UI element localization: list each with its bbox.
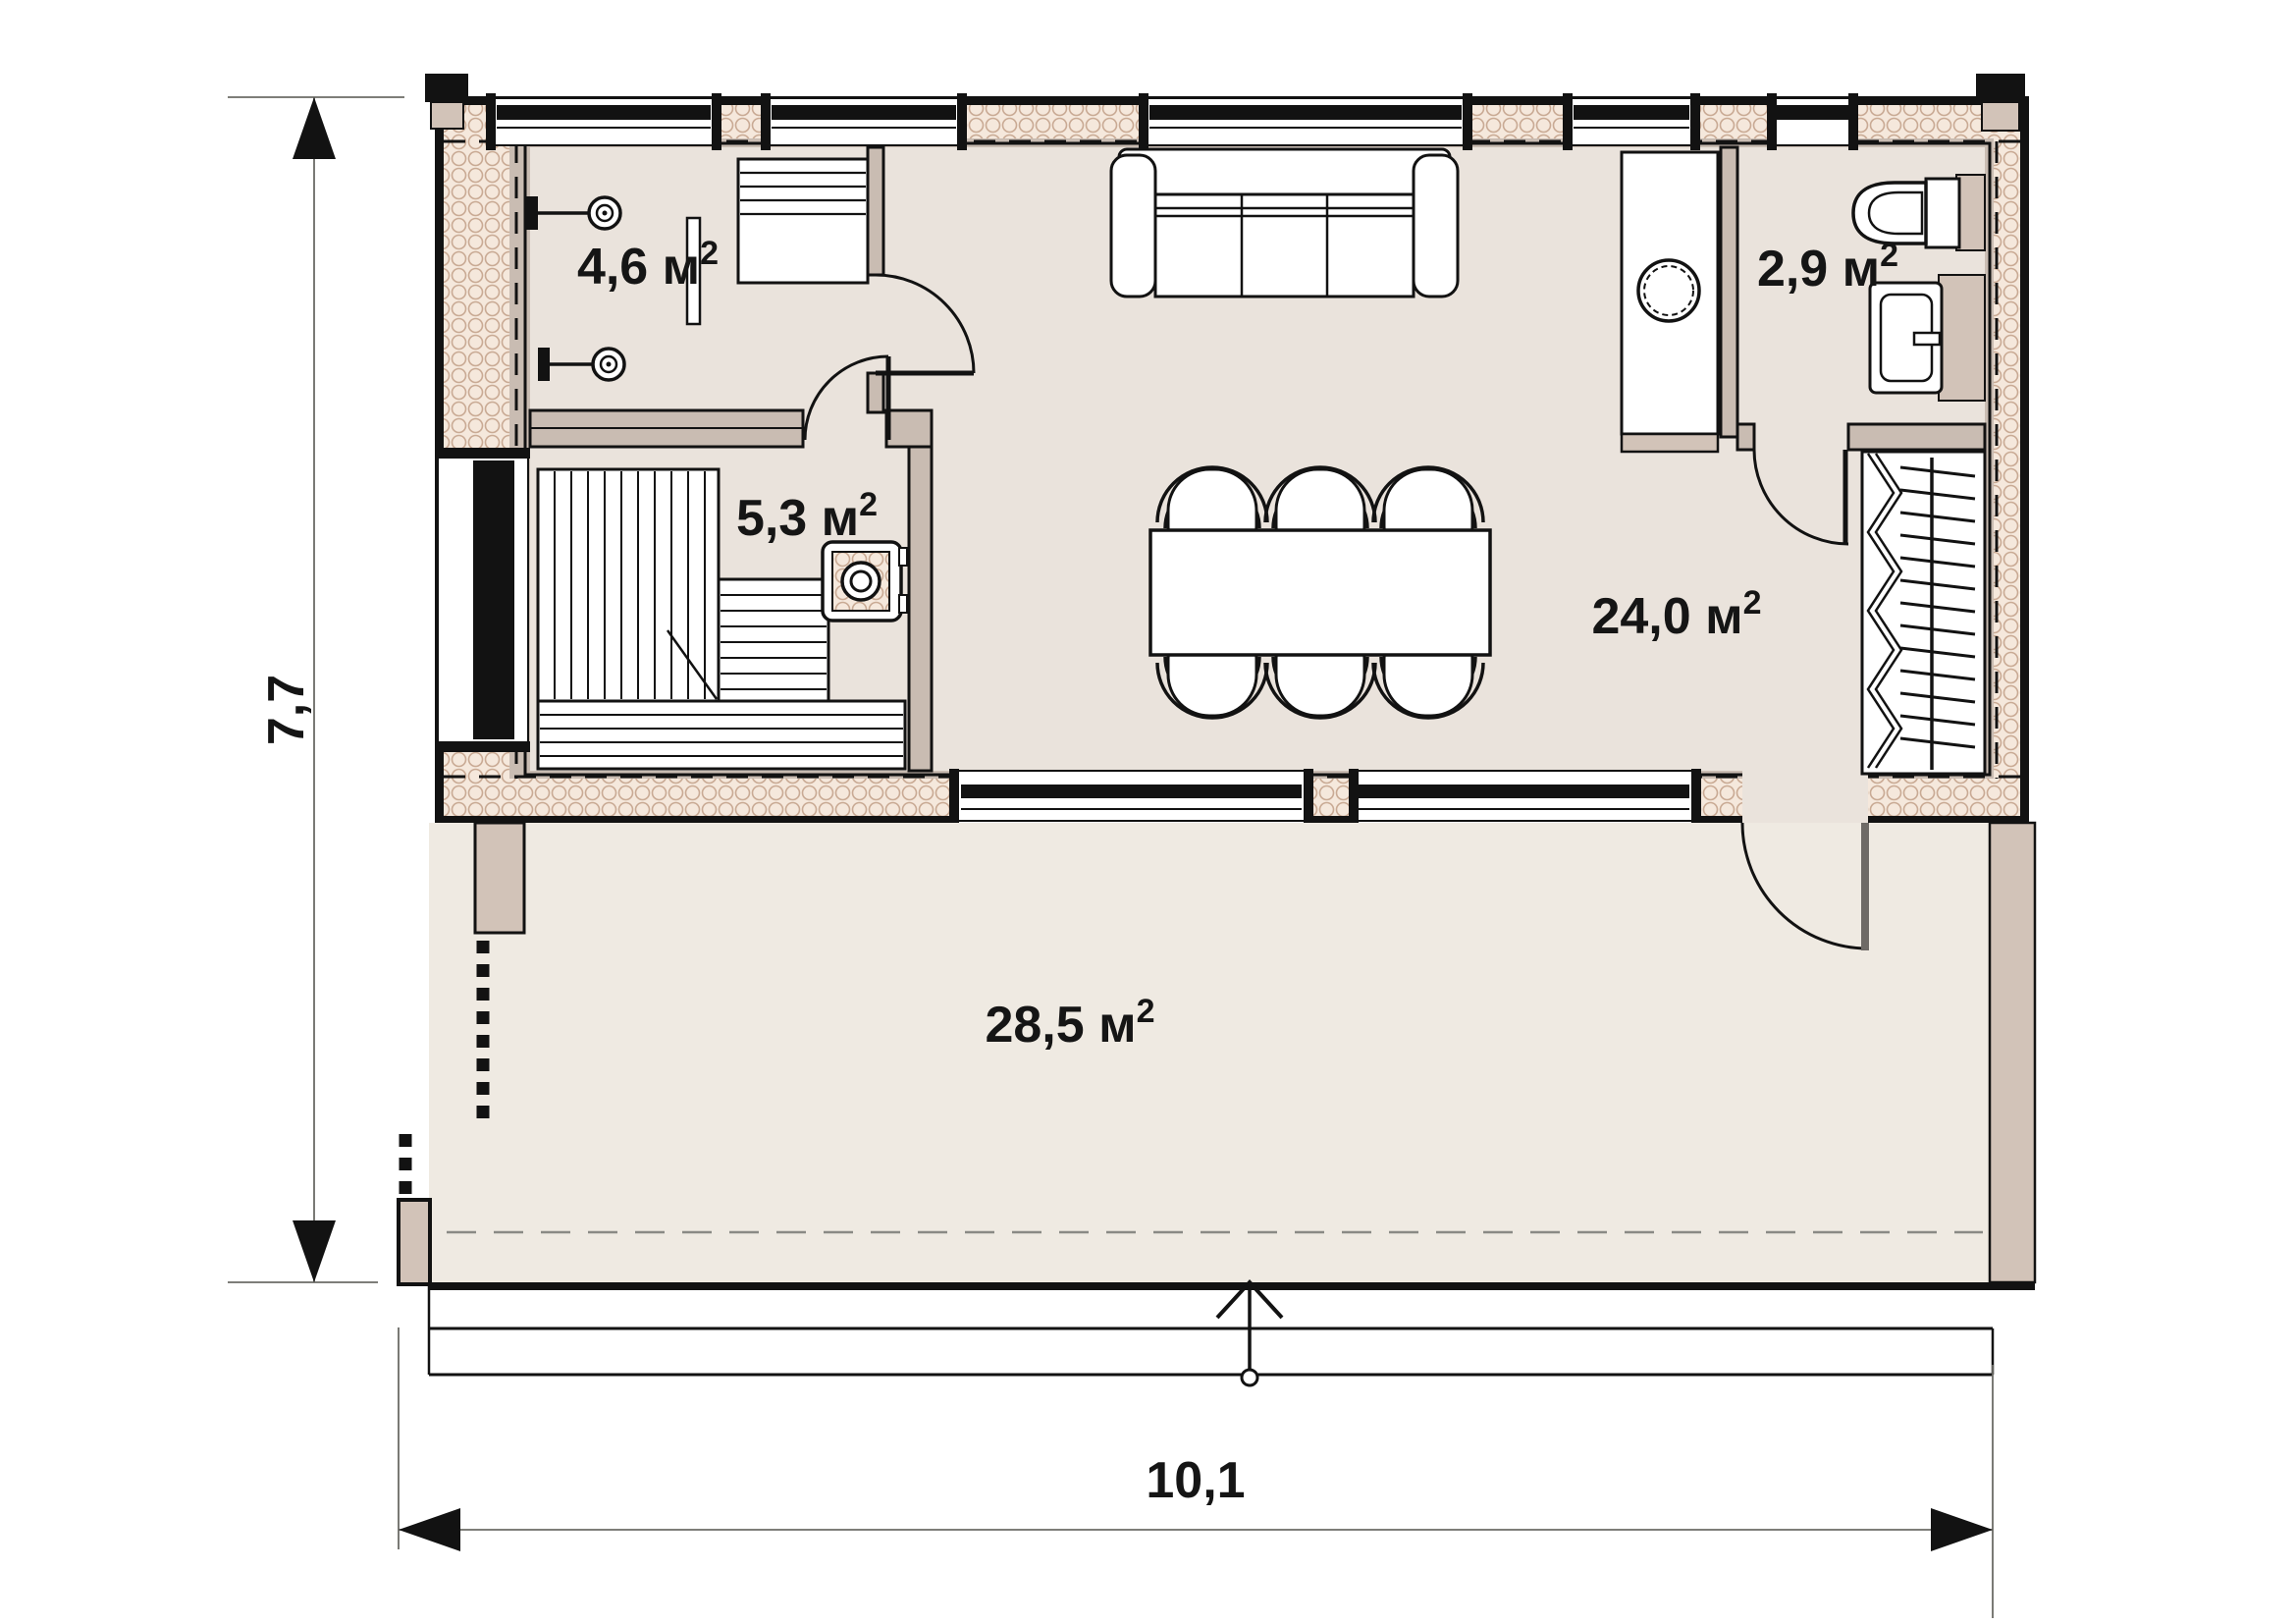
window-bottom-2 bbox=[1349, 769, 1701, 823]
wall-bottom-insulation-4 bbox=[1868, 779, 2020, 816]
wall-bottom-outer-3 bbox=[1695, 816, 1742, 823]
corner-post-top-right bbox=[1976, 74, 2025, 131]
sofa bbox=[1111, 149, 1458, 297]
wall-sauna-corner-nub bbox=[886, 410, 932, 447]
wall-bottom-insulation-1 bbox=[444, 779, 955, 816]
dining-table bbox=[1150, 530, 1490, 655]
wall-shower-right-lower bbox=[868, 373, 883, 412]
dim-width-text: 10,1 bbox=[1146, 1452, 1245, 1509]
wall-sauna-right bbox=[909, 447, 932, 771]
window-top-5 bbox=[1767, 93, 1858, 150]
label-shower-area: 4,6 м2 bbox=[577, 235, 719, 296]
dim-height-text: 7,7 bbox=[258, 675, 315, 745]
terrace-floor bbox=[429, 823, 2035, 1282]
terrace-right-band bbox=[1990, 823, 2035, 1282]
terrace-door-threshold bbox=[1742, 769, 1868, 823]
dimension-height: 7,7 bbox=[228, 97, 404, 1282]
sauna-bench-upper bbox=[538, 469, 719, 701]
dim-height-label: 7,7 bbox=[258, 675, 315, 745]
sauna-bench-lower bbox=[538, 701, 905, 769]
wall-shower-right-upper bbox=[868, 147, 883, 275]
dining-set bbox=[1150, 467, 1490, 718]
kitchen-counter-cap bbox=[1622, 434, 1718, 452]
entry-arrow-icon bbox=[1217, 1282, 1282, 1385]
kitchen-counter bbox=[1622, 152, 1718, 452]
wall-bottom-insulation-3 bbox=[1695, 779, 1742, 816]
toilet-icon bbox=[1853, 175, 1985, 250]
window-top-3 bbox=[1139, 93, 1472, 150]
wall-bathroom-bottom-left bbox=[1737, 424, 1754, 450]
wall-bottom-outer-1 bbox=[435, 816, 955, 823]
wall-bottom-outer-2 bbox=[1308, 816, 1353, 823]
terrace-corner-post bbox=[399, 1200, 430, 1284]
dimension-width: 10,1 bbox=[399, 1327, 1993, 1618]
window-left-sauna bbox=[435, 448, 530, 752]
shower-bench bbox=[738, 159, 868, 283]
label-terrace-area: 28,5 м2 bbox=[985, 993, 1154, 1054]
wall-bathroom-left bbox=[1721, 147, 1737, 437]
terrace bbox=[399, 823, 2035, 1385]
window-top-1 bbox=[486, 93, 721, 150]
floor-plan-page: 7,7 bbox=[0, 0, 2296, 1624]
label-living-area: 24,0 м2 bbox=[1591, 584, 1761, 645]
window-top-4 bbox=[1563, 93, 1700, 150]
wall-bottom-insulation-2 bbox=[1308, 779, 1353, 816]
sink-icon bbox=[1870, 275, 1985, 401]
wall-right-outer bbox=[2020, 96, 2029, 823]
sauna-bench-middle bbox=[719, 579, 828, 701]
arrow-right-icon bbox=[1931, 1508, 1993, 1551]
sauna-stove-icon bbox=[823, 542, 907, 621]
wall-bottom-outer-4 bbox=[1868, 816, 2029, 823]
wardrobe bbox=[1862, 452, 1985, 774]
corner-post-top-left bbox=[425, 74, 468, 129]
label-sauna-area: 5,3 м2 bbox=[736, 486, 878, 547]
arrow-down-icon bbox=[293, 1220, 336, 1282]
window-bottom-1 bbox=[949, 769, 1313, 823]
arrow-left-icon bbox=[399, 1508, 460, 1551]
wall-bathroom-bottom-right bbox=[1848, 424, 1985, 450]
window-top-2 bbox=[761, 93, 967, 150]
terrace-left-pilaster bbox=[475, 823, 524, 933]
floor-plan-drawing: 7,7 bbox=[0, 0, 2296, 1624]
arrow-up-icon bbox=[293, 97, 336, 159]
terrace-edge bbox=[429, 1282, 2035, 1290]
label-bathroom-area: 2,9 м2 bbox=[1757, 237, 1898, 298]
